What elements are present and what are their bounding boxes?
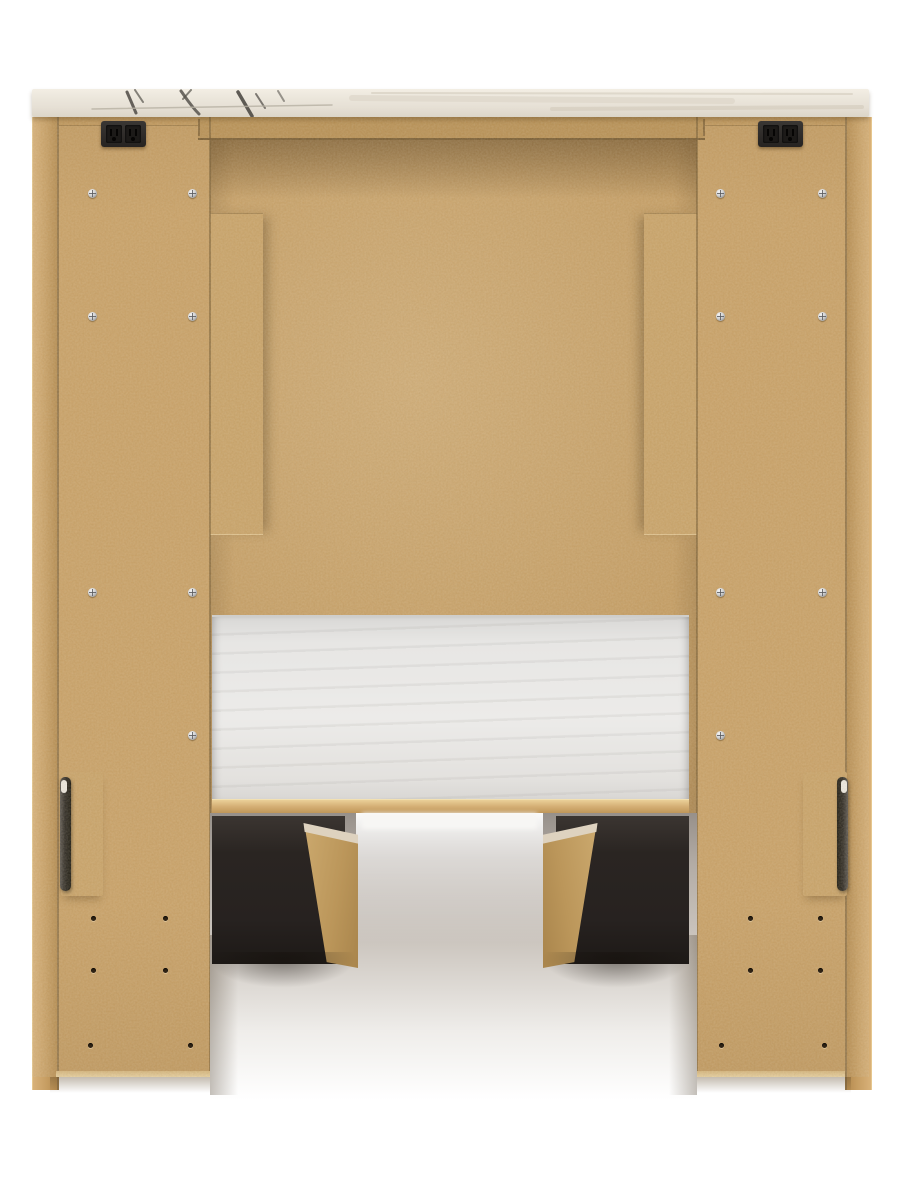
screw xyxy=(716,588,725,597)
marble-vein-pattern xyxy=(32,89,869,117)
wood-face xyxy=(300,820,358,968)
bolt-hole xyxy=(748,968,753,973)
outlet-socket xyxy=(106,125,122,143)
screw xyxy=(88,312,97,321)
center-top-rail xyxy=(198,117,705,140)
outlet-socket xyxy=(782,125,798,143)
screw xyxy=(818,588,827,597)
right-drawer-side-panel xyxy=(543,820,601,968)
right-side-panel xyxy=(697,117,845,1077)
outlet-socket xyxy=(125,125,141,143)
bolt-hole xyxy=(163,968,168,973)
power-outlet xyxy=(758,121,803,147)
screw xyxy=(188,588,197,597)
marble-vein xyxy=(181,91,199,114)
marble-vein xyxy=(135,90,143,102)
power-outlet xyxy=(101,121,146,147)
rail-drop-shadow xyxy=(210,140,697,198)
bolt-hole xyxy=(91,916,96,921)
right-bracket-block xyxy=(803,772,847,896)
bracket-highlight xyxy=(841,780,847,793)
screw xyxy=(818,312,827,321)
bolt-hole xyxy=(822,1043,827,1048)
screw xyxy=(716,731,725,740)
left-bracket-block xyxy=(61,772,103,896)
screw xyxy=(188,189,197,198)
bolt-hole xyxy=(818,916,823,921)
screw xyxy=(818,189,827,198)
bolt-hole xyxy=(748,916,753,921)
screw xyxy=(716,312,725,321)
right-floor-shadow xyxy=(693,1077,851,1093)
wood-face xyxy=(543,820,601,968)
bolt-hole xyxy=(163,916,168,921)
bracket-highlight xyxy=(61,780,67,793)
left-mounting-bracket xyxy=(60,777,71,891)
marble-vein xyxy=(127,92,136,113)
rail-step-seam xyxy=(703,119,705,136)
left-drawer-shadow xyxy=(209,952,356,988)
marble-vein xyxy=(352,98,732,101)
bolt-hole xyxy=(818,968,823,973)
marble-top-panel xyxy=(32,89,869,117)
screw xyxy=(188,731,197,740)
right-mounting-bracket xyxy=(837,777,848,891)
rail-step-seam xyxy=(198,119,200,136)
screw xyxy=(716,189,725,198)
left-mounting-board xyxy=(210,213,263,535)
backlight-glow-core xyxy=(362,813,537,829)
marble-vein xyxy=(92,105,332,109)
outlet-socket xyxy=(763,125,779,143)
right-drawer-shadow xyxy=(543,952,690,988)
backlight-glow xyxy=(356,813,543,943)
bolt-hole xyxy=(719,1043,724,1048)
left-floor-shadow xyxy=(50,1077,214,1093)
marble-vein xyxy=(238,92,252,116)
marble-vein xyxy=(278,91,284,101)
marble-vein xyxy=(552,107,862,109)
marble-vein xyxy=(372,93,852,94)
screw xyxy=(188,312,197,321)
screw xyxy=(88,189,97,198)
left-side-edge xyxy=(32,117,59,1090)
mattress-deck-fabric xyxy=(212,615,689,803)
product-photo xyxy=(0,0,901,1200)
screw xyxy=(88,588,97,597)
bolt-hole xyxy=(91,968,96,973)
right-side-edge xyxy=(845,117,872,1090)
bolt-hole xyxy=(188,1043,193,1048)
left-drawer-side-panel xyxy=(300,820,358,968)
left-side-panel xyxy=(56,117,210,1077)
right-mounting-board xyxy=(644,213,697,535)
bolt-hole xyxy=(88,1043,93,1048)
